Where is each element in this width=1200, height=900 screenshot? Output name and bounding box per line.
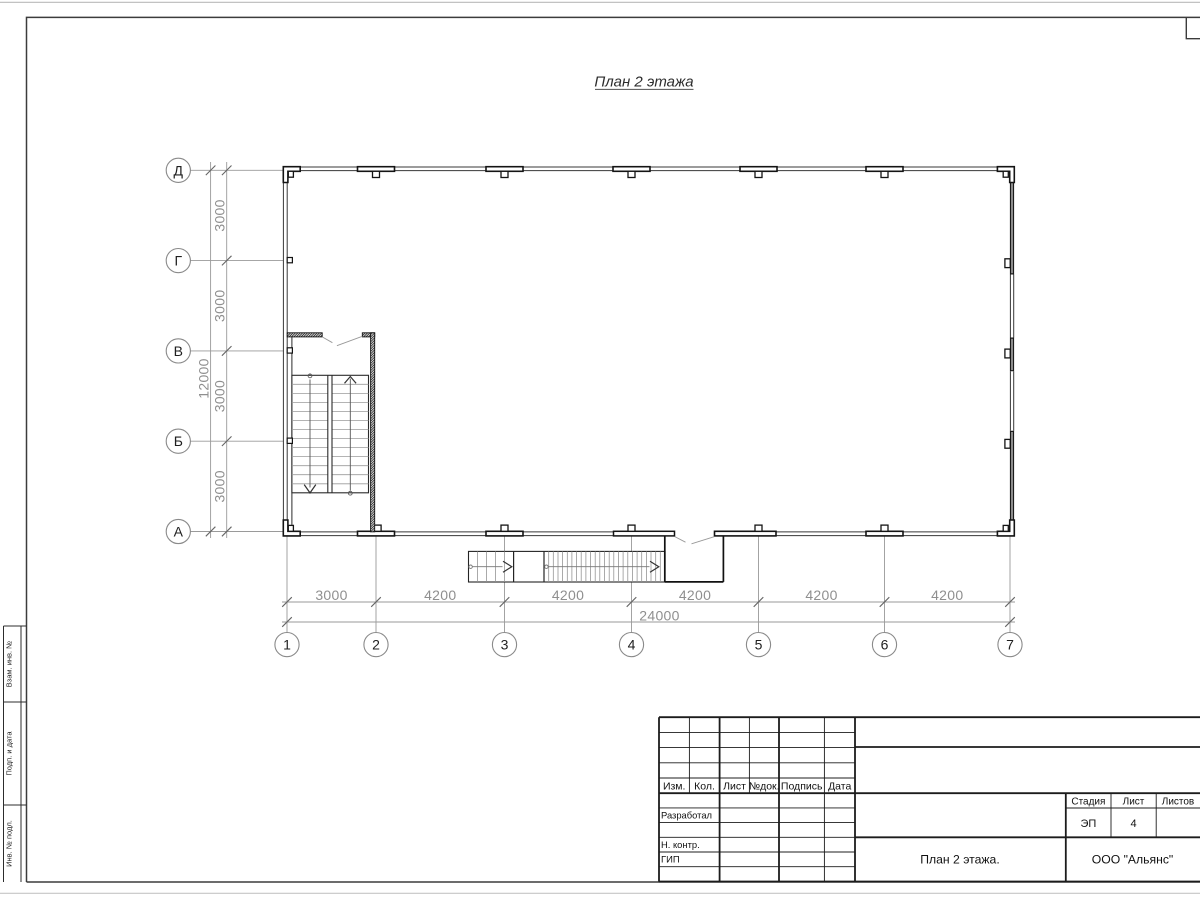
svg-text:4200: 4200 — [552, 587, 584, 603]
svg-text:Г: Г — [175, 253, 183, 269]
svg-text:Кол.: Кол. — [694, 781, 715, 793]
svg-text:Подп. и дата: Подп. и дата — [5, 731, 14, 776]
svg-text:4: 4 — [628, 637, 636, 653]
svg-text:Лист: Лист — [723, 781, 746, 793]
svg-text:3: 3 — [501, 637, 509, 653]
svg-text:Разработал: Разработал — [661, 810, 712, 821]
svg-text:ГИП: ГИП — [661, 854, 680, 865]
svg-text:1: 1 — [283, 637, 291, 653]
svg-text:3000: 3000 — [315, 587, 347, 603]
svg-text:3000: 3000 — [212, 290, 228, 322]
svg-text:6: 6 — [881, 637, 889, 653]
svg-text:Стадия: Стадия — [1071, 797, 1105, 808]
svg-text:7: 7 — [1006, 637, 1014, 653]
svg-text:Б: Б — [174, 433, 183, 449]
svg-text:План 2 этажа: План 2 этажа — [594, 74, 693, 91]
svg-text:Д: Д — [174, 162, 184, 178]
svg-text:12000: 12000 — [196, 358, 212, 398]
svg-text:Изм.: Изм. — [663, 781, 686, 793]
svg-text:4200: 4200 — [805, 587, 837, 603]
svg-text:Лист: Лист — [1123, 797, 1145, 808]
svg-text:4200: 4200 — [679, 587, 711, 603]
svg-text:4200: 4200 — [424, 587, 456, 603]
svg-text:4200: 4200 — [931, 587, 963, 603]
svg-text:3000: 3000 — [212, 380, 228, 412]
svg-text:План 2 этажа.: План 2 этажа. — [920, 853, 999, 867]
svg-text:2: 2 — [372, 637, 380, 653]
svg-text:24000: 24000 — [639, 608, 679, 624]
svg-text:Инв. № подл.: Инв. № подл. — [5, 820, 14, 867]
svg-text:ООО "Альянс": ООО "Альянс" — [1092, 853, 1174, 867]
svg-text:3000: 3000 — [212, 470, 228, 502]
svg-text:А: А — [174, 524, 184, 540]
svg-text:ЭП: ЭП — [1080, 818, 1096, 830]
svg-text:Н. контр.: Н. контр. — [661, 839, 700, 850]
svg-text:5: 5 — [755, 637, 763, 653]
svg-text:Подпись: Подпись — [781, 781, 823, 793]
svg-text:Дата: Дата — [828, 781, 851, 793]
svg-text:Взам. инв. №: Взам. инв. № — [5, 641, 14, 687]
svg-text:Листов: Листов — [1162, 797, 1195, 808]
svg-text:3000: 3000 — [212, 199, 228, 231]
svg-text:№док.: №док. — [749, 781, 780, 793]
svg-text:4: 4 — [1130, 818, 1136, 830]
svg-text:В: В — [174, 343, 183, 359]
